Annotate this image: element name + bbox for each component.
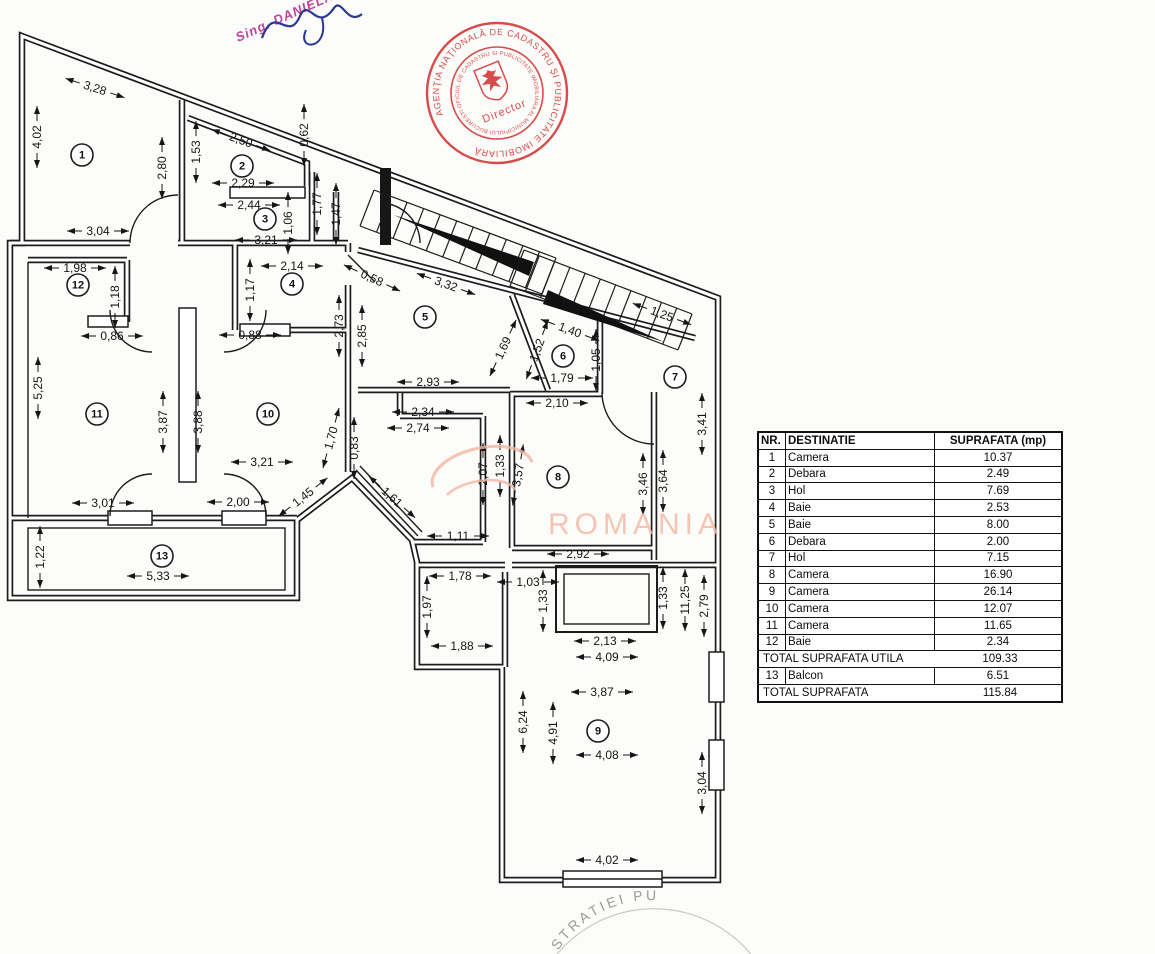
threshold [108, 511, 152, 525]
dimension-value: 1,98 [63, 261, 87, 275]
dimension-label: 3,04 [695, 752, 709, 814]
dimension-label: 1,33 [656, 567, 670, 629]
cell-nr: 5 [758, 516, 786, 533]
dimension-label: 1,53 [189, 121, 203, 183]
dimension-value: 3,57 [509, 462, 527, 488]
dimension-value: 1,69 [492, 334, 515, 361]
dimension-label: 2,14 [261, 259, 323, 273]
dimension-value: 1,22 [33, 545, 47, 569]
total-row-label: TOTAL SUPRAFATA [761, 687, 868, 699]
dimension-value: 2,73 [332, 314, 346, 338]
dimension-value: 1,53 [189, 140, 203, 164]
cell-destinatie: Camera [786, 567, 935, 584]
dimension-value: 4,02 [30, 125, 44, 149]
cell-suprafata: 2.00 [935, 533, 1063, 550]
dimension-value: 3,04 [695, 771, 709, 795]
dimension-value: 2,29 [231, 176, 255, 190]
dimension-value: 2,92 [566, 547, 590, 561]
room-number-value: 1 [79, 150, 85, 162]
dimension-label: 1,78 [429, 569, 491, 583]
dimension-value: 2,93 [416, 375, 440, 389]
room-number: 1 [71, 144, 93, 166]
dimension-label: 2,85 [355, 305, 369, 367]
room-number: 5 [414, 306, 436, 328]
dimension-value: 2,13 [593, 634, 617, 648]
room-number: 7 [664, 366, 686, 388]
cell-destinatie: Baie [786, 634, 935, 651]
dimension-label: 1,17 [243, 259, 257, 321]
table-row: 1Camera10.37 [758, 449, 1062, 466]
dimension-label: 11,25 [678, 569, 692, 631]
signature-ink-icon [304, 18, 323, 45]
table-row: 6Debara2.00 [758, 533, 1062, 550]
threshold [88, 316, 128, 327]
dimension-value: 3,04 [86, 224, 110, 238]
table-row: 8Camera16.90 [758, 567, 1062, 584]
threshold [222, 511, 266, 525]
dimension-value: 3,87 [590, 685, 614, 699]
dimension-value: 3,88 [191, 410, 205, 434]
dimension-labels-layer: 3,284,022,801,532,500,622,292,441,061,77… [30, 72, 711, 867]
cell-nr: 9 [758, 584, 786, 601]
table-row: 4Baie2.53 [758, 500, 1062, 517]
dimension-value: 1,97 [420, 595, 434, 619]
dimension-label: 4,91 [546, 702, 560, 764]
cell-nr: 10 [758, 600, 786, 617]
dimension-value: 0,86 [100, 329, 124, 343]
shaft [556, 566, 657, 632]
dimension-label: 1,70 [316, 406, 346, 470]
dimension-value: 6,24 [516, 710, 530, 734]
dimension-label: 3,21 [231, 455, 293, 469]
subtotal-row-value: 109.33 [941, 653, 1059, 665]
dimension-label: 5,25 [31, 357, 45, 419]
door-arc [602, 392, 654, 444]
area-table-wrap: NR. DESTINATIE SUPRAFATA (mp) 1Camera10.… [757, 431, 1047, 703]
cell-suprafata: 8.00 [935, 516, 1063, 533]
cell-suprafata: 2.34 [935, 634, 1063, 651]
room-number: 12 [67, 274, 89, 296]
dimension-value: 1,06 [281, 211, 295, 235]
dimension-value: 2,14 [280, 259, 304, 273]
dimension-value: 2,00 [226, 495, 250, 509]
table-row: TOTAL SUPRAFATA115.84 [758, 684, 1062, 701]
dimension-label: 2,10 [526, 396, 588, 410]
dimension-value: 2,74 [406, 421, 430, 435]
cell-nr: 13 [758, 668, 786, 685]
cell-suprafata: 26.14 [935, 584, 1063, 601]
dimension-label: 0,86 [81, 329, 143, 343]
dimension-value: 2,85 [355, 324, 369, 348]
dimension-value: 4,09 [595, 650, 619, 664]
dimension-value: 0,88 [238, 328, 262, 342]
dimension-value: 1,18 [108, 285, 122, 309]
dimension-value: 3,21 [250, 455, 274, 469]
door-arc [130, 195, 178, 243]
cell-suprafata: 16.90 [935, 567, 1063, 584]
dimension-label: 2,00 [207, 495, 269, 509]
room-number-value: 2 [239, 161, 245, 173]
cell-suprafata: 7.15 [935, 550, 1063, 567]
dimension-value: 4,08 [595, 748, 619, 762]
dimension-value: 11,25 [678, 585, 692, 614]
room-number: 3 [254, 208, 276, 230]
col-header-destinatie: DESTINATIE [786, 432, 935, 449]
dimension-value: 3,21 [254, 233, 278, 247]
seal-outer-text: AGENŢIA NAŢIONALĂ DE CADASTRU ŞI PUBLICI… [411, 7, 583, 179]
room-numbers-layer: 12345678910111213 [67, 144, 686, 742]
dimension-label: 3,04 [67, 224, 129, 238]
cell-suprafata: 11.65 [935, 617, 1063, 634]
table-row: 13Balcon6.51 [758, 668, 1062, 685]
dimension-value: 5,33 [146, 569, 170, 583]
table-header-row: NR. DESTINATIE SUPRAFATA (mp) [758, 432, 1062, 449]
door-arc [110, 474, 152, 516]
room-number: 2 [231, 155, 253, 177]
dimension-value: 1,78 [448, 569, 472, 583]
dimension-label: 3,64 [656, 450, 670, 512]
dimension-value: 2,50 [228, 129, 255, 150]
room-number-value: 12 [72, 280, 84, 292]
cell-destinatie: Baie [786, 500, 935, 517]
room-number: 9 [587, 720, 609, 742]
room-number-value: 9 [595, 726, 601, 738]
room-number: 11 [86, 403, 108, 425]
ramp-line [356, 470, 418, 536]
cell-nr: 3 [758, 483, 786, 500]
dimension-value: 3,46 [636, 472, 650, 496]
cell-nr: 4 [758, 500, 786, 517]
cell-suprafata: 2.49 [935, 466, 1063, 483]
table-row: 12Baie2.34 [758, 634, 1062, 651]
cell-destinatie: Balcon [786, 668, 935, 685]
cell-suprafata: 12.07 [935, 600, 1063, 617]
room-number-value: 10 [262, 409, 274, 421]
table-row: TOTAL SUPRAFATA UTILA109.33 [758, 651, 1062, 668]
room-number-value: 4 [289, 279, 296, 291]
dimension-value: 2,44 [237, 198, 261, 212]
dimension-value: 1,70 [321, 425, 341, 451]
dimension-value: 1,33 [656, 586, 670, 610]
dimension-label: 3,01 [72, 496, 134, 510]
dimension-label: 4,02 [30, 106, 44, 168]
signature-group: Sing. DANIELA [233, 0, 362, 45]
table-row: 3Hol7.69 [758, 483, 1062, 500]
total-row: TOTAL SUPRAFATA115.84 [758, 684, 1062, 701]
room-number: 10 [257, 403, 279, 425]
dimension-value: 1,33 [493, 454, 507, 478]
room-number-value: 11 [91, 409, 103, 421]
dimension-value: 1,05 [589, 348, 603, 372]
total-row-value: 115.84 [941, 687, 1059, 699]
dimension-value: 1,77 [310, 192, 324, 216]
cell-destinatie: Camera [786, 600, 935, 617]
cell-suprafata: 10.37 [935, 449, 1063, 466]
dimension-label: 4,02 [576, 853, 638, 867]
cell-suprafata: 7.69 [935, 483, 1063, 500]
col-header-suprafata: SUPRAFATA (mp) [935, 432, 1063, 449]
room-number-value: 7 [672, 372, 678, 384]
cell-nr: 7 [758, 550, 786, 567]
dimension-label: 3,28 [63, 72, 126, 104]
bottom-partial-stamp: STRATIEI PU [543, 887, 762, 954]
watermark-group: ROMANIA [432, 446, 723, 541]
window [709, 740, 724, 790]
cell-nr: 12 [758, 634, 786, 651]
cell-suprafata: 6.51 [935, 668, 1063, 685]
room-number-value: 8 [555, 472, 561, 484]
dimension-label: 4,09 [576, 650, 638, 664]
dimension-label: 2,07 [476, 443, 490, 505]
dimension-label: 3,87 [571, 685, 633, 699]
table-row: 2Debara2.49 [758, 466, 1062, 483]
table-row: 5Baie8.00 [758, 516, 1062, 533]
pillar [179, 308, 196, 482]
dimension-label: 1,97 [420, 576, 434, 638]
col-header-nr: NR. [758, 432, 786, 449]
dimension-value: 1,17 [243, 278, 257, 302]
dimension-value: 2,79 [697, 594, 711, 618]
cadastral-floor-plan-page: 3,284,022,801,532,500,622,292,441,061,77… [0, 0, 1155, 954]
cell-destinatie: Camera [786, 449, 935, 466]
dimension-value: 3,28 [82, 78, 109, 99]
dimension-label: 2,80 [155, 137, 169, 199]
dimension-label: 6,24 [516, 691, 530, 753]
cell-destinatie: Debara [786, 533, 935, 550]
table-row: 9Camera26.14 [758, 584, 1062, 601]
dimension-value: 3,41 [695, 412, 709, 436]
subtotal-row: TOTAL SUPRAFATA UTILA109.33 [758, 651, 1062, 668]
dimension-value: 5,25 [31, 376, 45, 400]
dimension-value: 3,64 [656, 469, 670, 493]
cell-nr: 6 [758, 533, 786, 550]
table-row: 11Camera11.65 [758, 617, 1062, 634]
dimension-value: 3,87 [156, 410, 170, 434]
cell-nr: 8 [758, 567, 786, 584]
cell-destinatie: Camera [786, 584, 935, 601]
dimension-label: 2,79 [697, 575, 711, 637]
room-number: 8 [547, 466, 569, 488]
dimension-value: 1,47 [329, 202, 343, 226]
dimension-label: 3,87 [156, 391, 170, 453]
dimension-value: 4,91 [546, 721, 560, 745]
room-number-value: 6 [560, 351, 566, 363]
dimension-value: 2,80 [155, 156, 169, 180]
dimension-label: 2,13 [574, 634, 636, 648]
room-number: 6 [552, 345, 574, 367]
cell-destinatie: Hol [786, 483, 935, 500]
cell-destinatie: Hol [786, 550, 935, 567]
dimension-value: 1,11 [447, 529, 470, 543]
dimension-value: 1,40 [557, 319, 584, 340]
room-number-value: 5 [422, 312, 428, 324]
dimension-label: 1,69 [484, 317, 523, 379]
dimension-value: 3,01 [91, 496, 115, 510]
dimension-label: 2,73 [332, 295, 346, 357]
watermark-text: ROMANIA [548, 508, 723, 541]
dimension-value: 2,34 [411, 405, 435, 419]
dimension-value: 0,58 [358, 267, 385, 290]
dimension-value: 1,79 [550, 371, 574, 385]
dimension-value: 1,88 [450, 639, 474, 653]
cell-destinatie: Debara [786, 466, 935, 483]
subtotal-row-label: TOTAL SUPRAFATA UTILA [761, 653, 904, 665]
cell-nr: 1 [758, 449, 786, 466]
dimension-label: 1,88 [431, 639, 493, 653]
dimension-label: 2,74 [387, 421, 449, 435]
table-row: 10Camera12.07 [758, 600, 1062, 617]
cell-nr: 2 [758, 466, 786, 483]
table-row: 7Hol7.15 [758, 550, 1062, 567]
shaft-inner [564, 574, 649, 624]
room-number-value: 13 [156, 551, 168, 563]
cell-destinatie: Camera [786, 617, 935, 634]
dimension-label: 3,41 [695, 393, 709, 455]
dimension-label: 1,22 [33, 526, 47, 588]
dimension-value: 2,10 [545, 396, 569, 410]
window [709, 652, 724, 702]
dimension-value: 0,62 [297, 123, 311, 147]
dimension-label: 4,08 [576, 748, 638, 762]
room-number: 13 [151, 545, 173, 567]
room-number: 4 [281, 273, 303, 295]
dimension-value: 4,02 [595, 853, 619, 867]
dimension-label: 3,46 [636, 453, 650, 515]
dimension-label: 5,33 [127, 569, 189, 583]
dimension-label: 1,33 [493, 435, 507, 497]
cell-nr: 11 [758, 617, 786, 634]
dimension-value: 1,33 [536, 589, 550, 613]
cell-destinatie: Baie [786, 516, 935, 533]
dimension-value: 1,03 [516, 575, 540, 589]
room-number-value: 3 [262, 214, 268, 226]
cell-suprafata: 2.53 [935, 500, 1063, 517]
dimension-value: 0,83 [347, 436, 361, 460]
dimension-label: 1,47 [329, 183, 343, 245]
area-table: NR. DESTINATIE SUPRAFATA (mp) 1Camera10.… [757, 431, 1063, 703]
